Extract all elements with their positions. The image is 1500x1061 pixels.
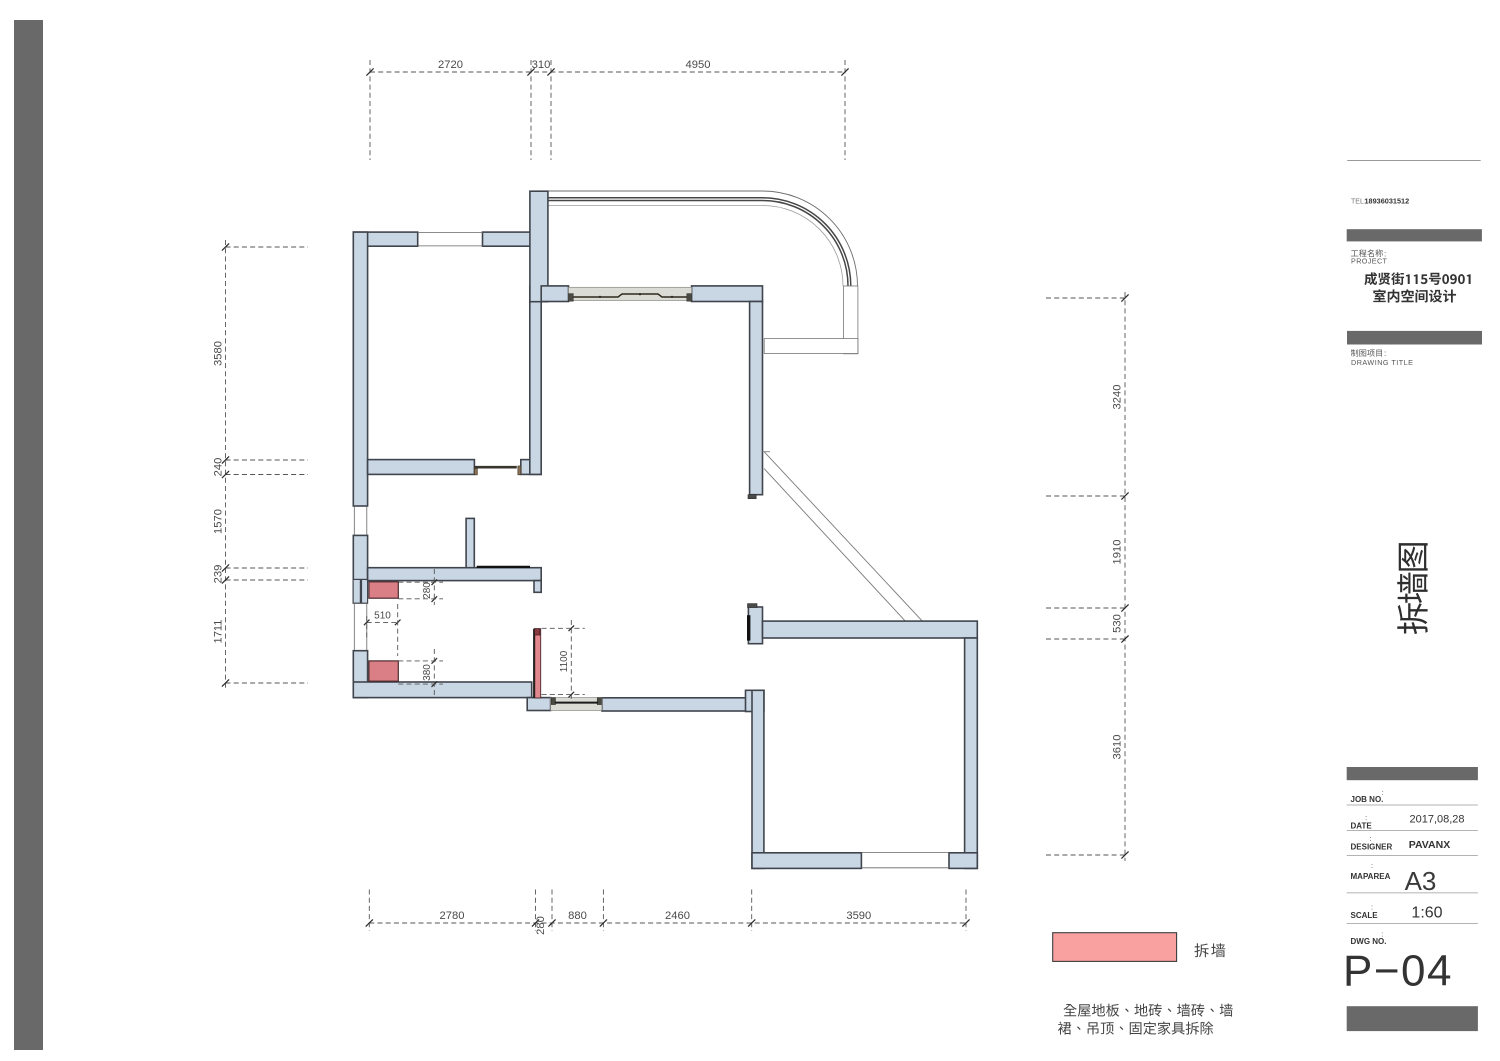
svg-text::: : <box>1370 836 1372 843</box>
svg-text:530: 530 <box>1112 614 1124 633</box>
svg-text:3240: 3240 <box>1112 385 1124 410</box>
svg-text:3610: 3610 <box>1112 735 1124 760</box>
svg-text:3580: 3580 <box>213 341 225 366</box>
svg-text:2460: 2460 <box>665 910 690 922</box>
svg-text:JOB NO.: JOB NO. <box>1351 795 1384 804</box>
svg-text:1570: 1570 <box>213 509 225 534</box>
svg-text:P−04: P−04 <box>1343 947 1453 996</box>
svg-text:1711: 1711 <box>213 619 225 643</box>
svg-text:280: 280 <box>535 916 547 935</box>
svg-text:18936031512: 18936031512 <box>1365 197 1410 206</box>
svg-text:2017,08,28: 2017,08,28 <box>1409 814 1464 826</box>
svg-text::: : <box>1382 790 1384 797</box>
svg-text:1:60: 1:60 <box>1411 904 1442 921</box>
svg-text::: : <box>1371 905 1373 912</box>
svg-text::: : <box>1381 932 1383 939</box>
svg-text:3590: 3590 <box>846 910 871 922</box>
svg-text:PAVANX: PAVANX <box>1409 839 1450 851</box>
svg-text:380: 380 <box>422 664 433 681</box>
svg-text::: : <box>1384 349 1386 358</box>
svg-text:SCALE: SCALE <box>1351 911 1379 920</box>
svg-text:1100: 1100 <box>559 650 570 672</box>
svg-text:DATE: DATE <box>1351 822 1373 831</box>
svg-text:240: 240 <box>213 458 225 477</box>
svg-text:PROJECT: PROJECT <box>1351 257 1388 266</box>
svg-text::: : <box>1371 863 1373 870</box>
svg-text:2720: 2720 <box>438 59 463 71</box>
svg-text:2780: 2780 <box>440 910 465 922</box>
svg-text:880: 880 <box>568 910 587 922</box>
svg-text:239: 239 <box>213 565 225 584</box>
svg-text:510: 510 <box>374 611 391 622</box>
svg-text:MAPAREA: MAPAREA <box>1351 872 1391 881</box>
svg-text:4950: 4950 <box>686 59 711 71</box>
svg-text:310: 310 <box>532 59 551 71</box>
svg-text:A3: A3 <box>1405 866 1437 896</box>
svg-text:280: 280 <box>422 582 433 599</box>
svg-text::: : <box>1365 815 1367 822</box>
svg-text:1910: 1910 <box>1112 540 1124 565</box>
svg-text:DRAWING TITLE: DRAWING TITLE <box>1351 358 1413 367</box>
svg-text:DESIGNER: DESIGNER <box>1351 843 1393 852</box>
